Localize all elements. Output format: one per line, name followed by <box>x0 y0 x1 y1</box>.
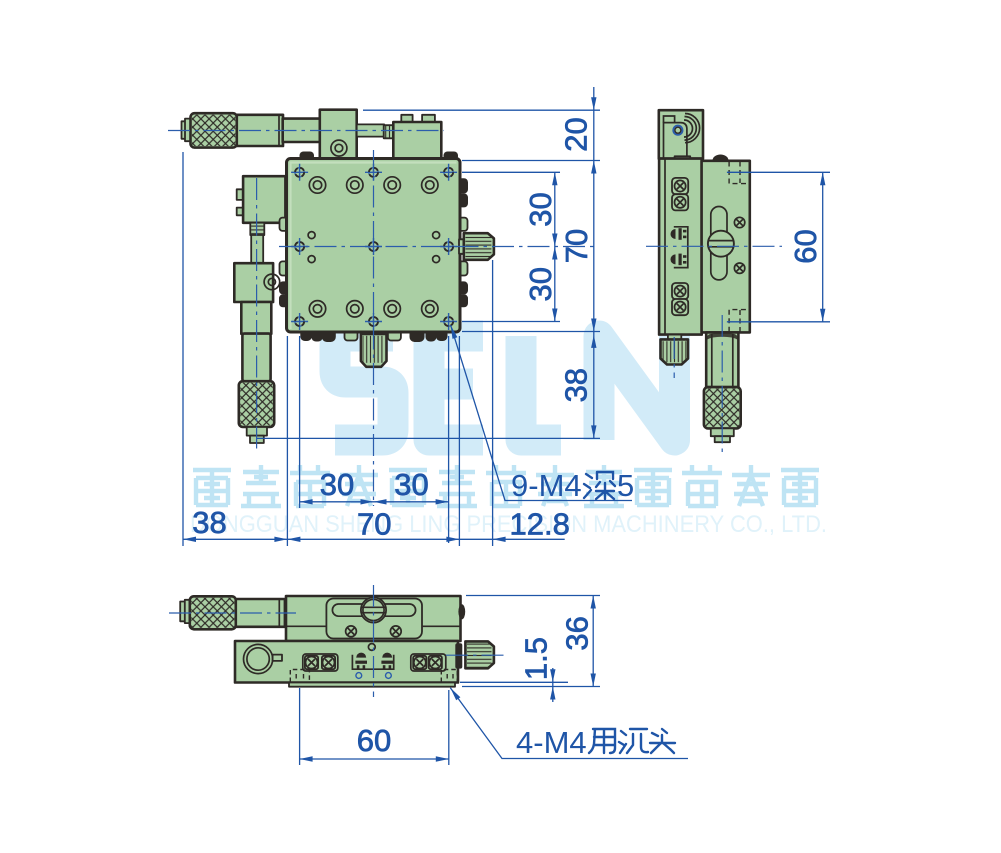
svg-text:38: 38 <box>192 505 226 540</box>
svg-text:36: 36 <box>559 616 594 650</box>
svg-text:30: 30 <box>523 267 558 301</box>
svg-text:30: 30 <box>523 192 558 226</box>
svg-text:30: 30 <box>320 467 354 502</box>
svg-text:70: 70 <box>357 507 391 542</box>
svg-text:70: 70 <box>559 229 594 263</box>
svg-text:5: 5 <box>617 468 634 503</box>
svg-text:60: 60 <box>788 229 823 263</box>
svg-text:DONGGUAN SHENG LING PRECISION: DONGGUAN SHENG LING PRECISION MACHINERY … <box>190 511 827 538</box>
svg-text:30: 30 <box>394 467 428 502</box>
svg-text:1.5: 1.5 <box>518 637 553 680</box>
svg-text:9-M4: 9-M4 <box>511 468 582 503</box>
svg-text:38: 38 <box>559 368 594 402</box>
svg-text:12.8: 12.8 <box>510 507 570 542</box>
svg-text:60: 60 <box>357 723 391 758</box>
svg-text:20: 20 <box>559 117 594 151</box>
svg-text:4-M4: 4-M4 <box>516 725 587 760</box>
